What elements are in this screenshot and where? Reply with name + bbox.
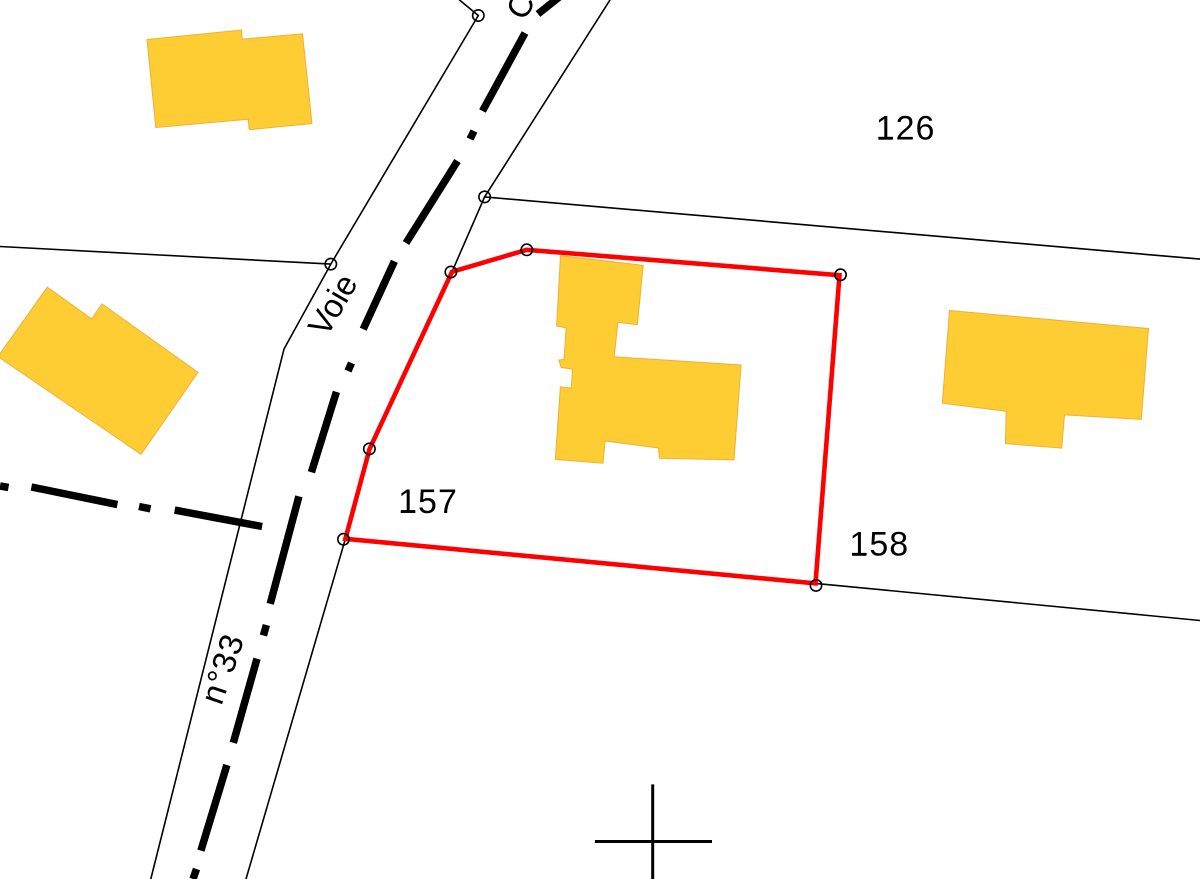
svg-text:158: 158: [849, 526, 909, 564]
svg-text:126: 126: [876, 110, 936, 148]
svg-text:157: 157: [398, 483, 458, 521]
